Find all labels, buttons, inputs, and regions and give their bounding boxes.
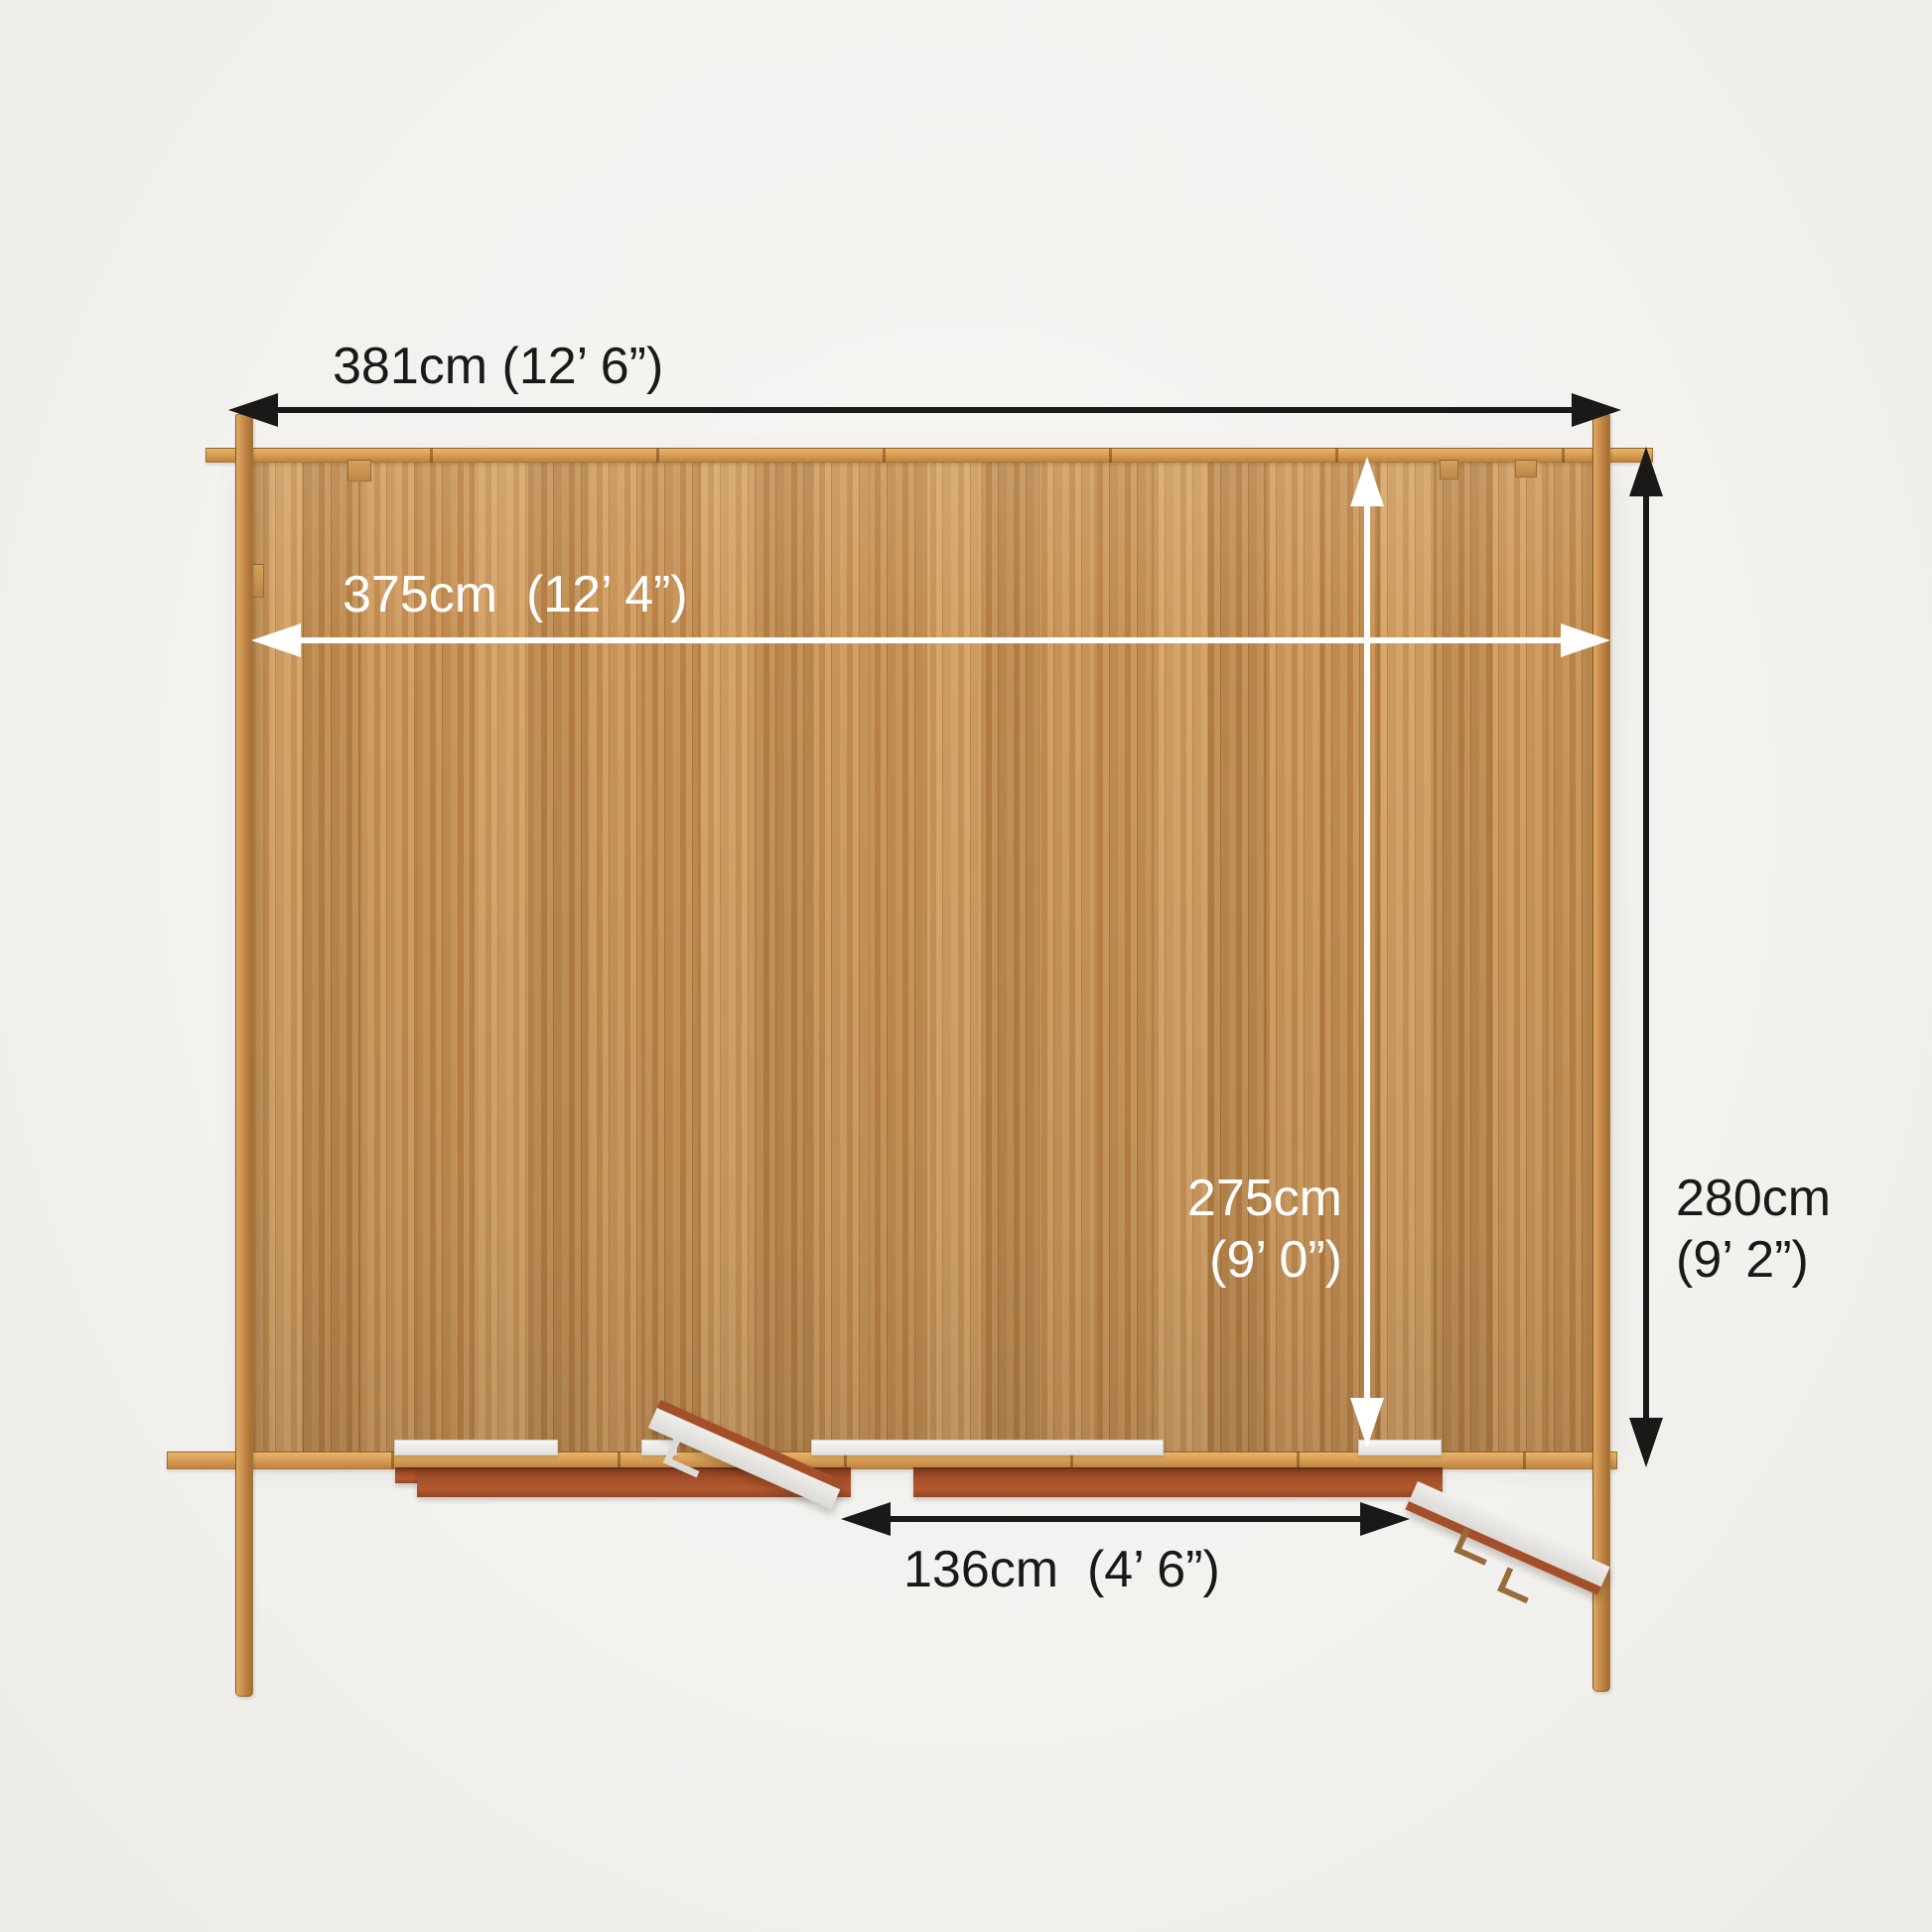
external-depth-ft: (9’ 2”) [1676,1229,1831,1291]
window-sill [394,1440,558,1455]
internal-width-label: 375cm (12’ 4”) [343,564,688,625]
internal-depth-cm: 275cm [1092,1168,1342,1229]
internal-width-arrow [251,637,1610,643]
internal-depth-ft: (9’ 0”) [1092,1229,1342,1291]
cabin-dimension-diagram: 381cm (12’ 6”) 375cm (12’ 4”) 280cm (9’ … [0,0,1932,1932]
internal-depth-label: 275cm (9’ 0”) [1092,1168,1342,1291]
door-leaf-right [1405,1481,1609,1595]
top-wall-beam [206,448,1653,463]
external-depth-arrow [1643,447,1649,1467]
door-frame-step [395,1467,419,1483]
door-threshold [913,1467,1443,1497]
door-handle [1453,1528,1495,1566]
log-joint-tab [1515,460,1537,478]
external-width-label: 381cm (12’ 6”) [333,336,663,397]
corner-log-right [1592,414,1610,1692]
internal-depth-arrow [1364,457,1370,1448]
window-sill [811,1440,1164,1455]
door-width-arrow [841,1516,1410,1522]
log-joint-tab [1440,460,1458,480]
external-depth-label: 280cm (9’ 2”) [1676,1168,1831,1291]
corner-log-left [235,414,253,1697]
external-depth-cm: 280cm [1676,1168,1831,1229]
external-width-arrow [228,407,1621,413]
log-joint-tab [347,460,371,482]
door-width-label: 136cm (4’ 6”) [903,1539,1220,1600]
door-handle [1497,1567,1537,1603]
